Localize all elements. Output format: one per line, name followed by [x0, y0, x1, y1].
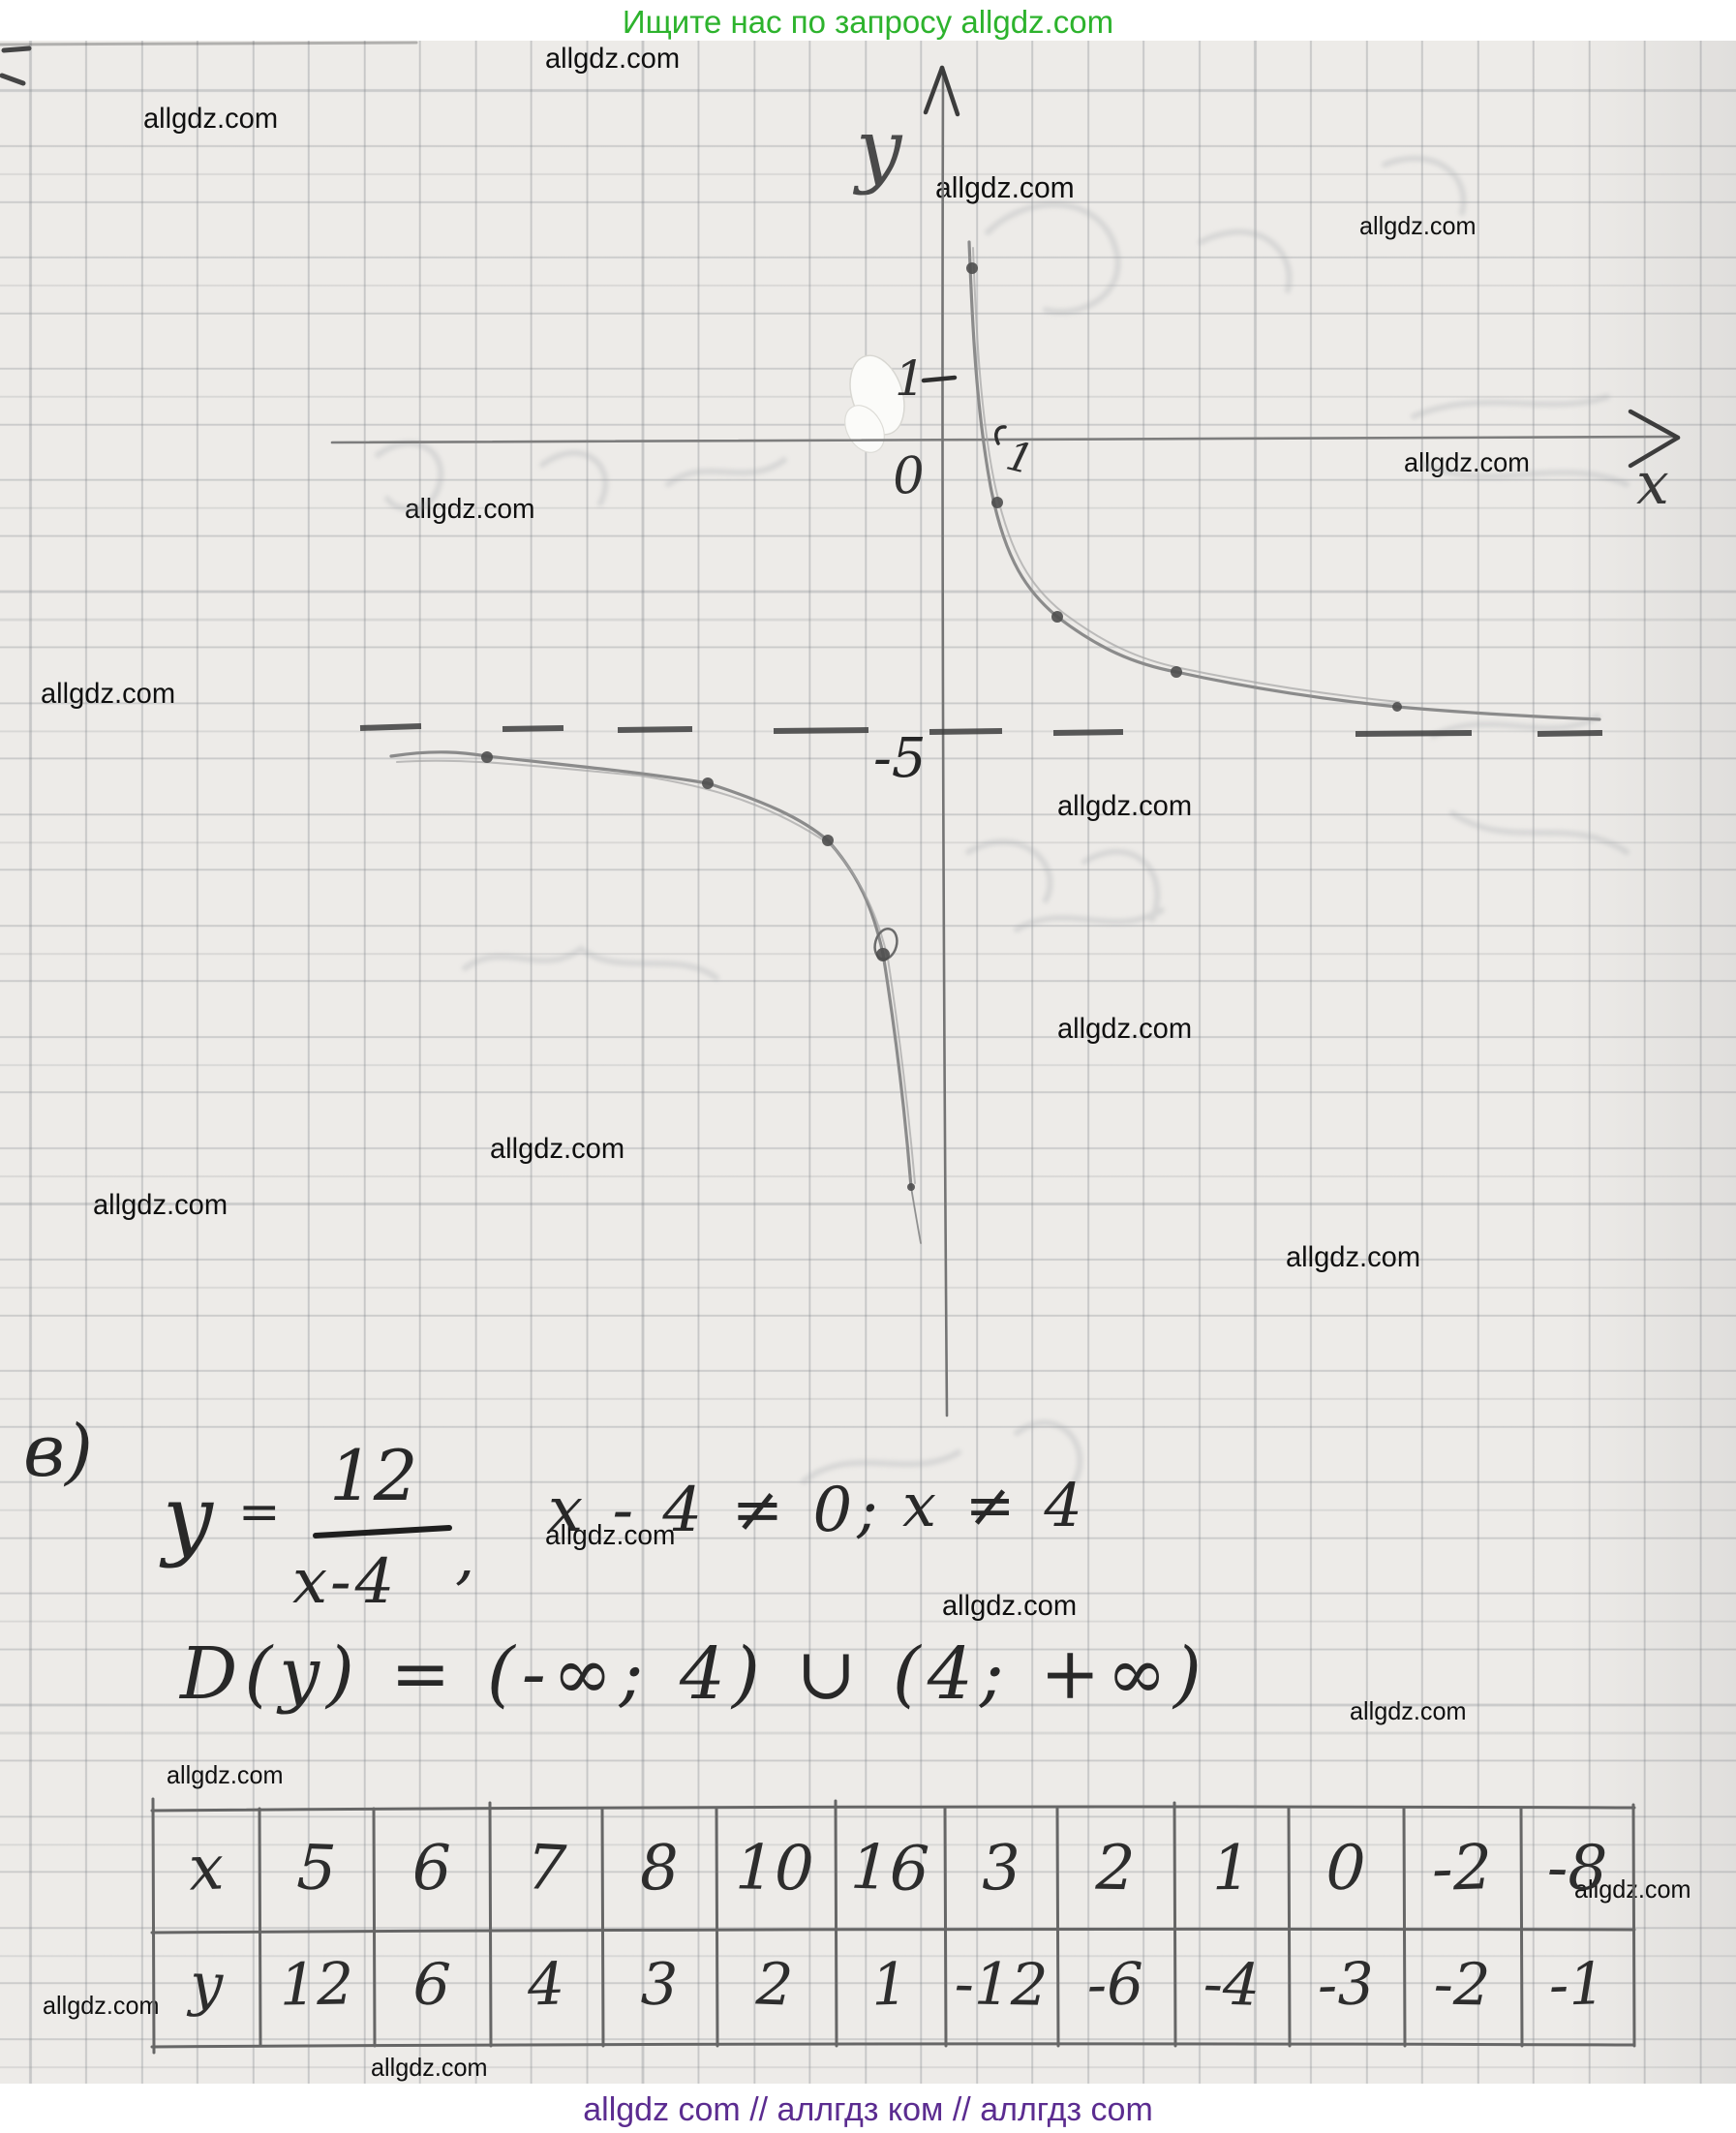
table-cell: 6: [411, 1838, 452, 1901]
pencil-drawing-layer: [0, 0, 1736, 2133]
table-row-label: y: [189, 1955, 224, 2014]
axis-tick-marks: [924, 378, 1005, 443]
y-unit-tick-label: 1: [895, 354, 926, 403]
function-symbol: y: [163, 1474, 213, 1563]
table-cell: 6: [411, 1955, 451, 2015]
table-row-label: x: [188, 1837, 225, 1900]
table-cell: 10: [735, 1837, 815, 1900]
domain-line: D(y) = (-∞; 4) ∪ (4; +∞): [180, 1638, 1208, 1710]
scan-edge-marks: [0, 43, 416, 83]
conclusion-text: x ≠ 4: [902, 1476, 1087, 1536]
table-cell: 2: [1095, 1838, 1136, 1901]
table-cell: 1: [1211, 1838, 1252, 1901]
origin-label: 0: [892, 450, 927, 503]
dashed-level-label: -5: [873, 732, 927, 786]
table-cell: 3: [981, 1837, 1022, 1900]
scanned-homework-page: Ищите нас по запросу allgdz.com allgdz.c…: [0, 0, 1736, 2133]
comma: ,: [455, 1526, 474, 1588]
table-cell: -6: [1086, 1955, 1143, 2014]
table-cell: 3: [640, 1956, 678, 2015]
bleed-through-marks: [378, 159, 1627, 1481]
x-axis-label: x: [1636, 455, 1669, 513]
table-cell: -1: [1548, 1955, 1607, 2015]
table-cell: 5: [296, 1837, 338, 1900]
equals-sign: =: [238, 1487, 281, 1538]
fraction-bar: [316, 1528, 449, 1536]
table-cell: -3: [1317, 1955, 1376, 2015]
y-axis: [926, 68, 958, 1416]
table-cell: 1: [870, 1955, 909, 2014]
fraction-denominator: x-4: [292, 1551, 398, 1613]
footer-promo-text: allgdz com // аллгдз ком // аллгдз com: [0, 2091, 1736, 2129]
x-axis: [332, 411, 1678, 466]
hyperbola-lower-branch: [391, 752, 921, 1243]
part-label: в): [23, 1416, 93, 1487]
condition-text: x - 4 ≠ 0;: [548, 1479, 883, 1541]
table-cell: -8: [1546, 1837, 1607, 1900]
y-axis-label: y: [856, 108, 901, 190]
table-cell: 2: [755, 1955, 794, 2014]
table-cell: 16: [849, 1837, 930, 1902]
table-cell: 0: [1325, 1837, 1367, 1900]
dashed-asymptote-line: [360, 726, 1602, 734]
table-cell: 8: [639, 1837, 681, 1900]
fraction-numerator: 12: [329, 1441, 418, 1510]
table-cell: 7: [525, 1837, 567, 1901]
table-cell: 12: [279, 1955, 353, 2014]
table-cell: -12: [954, 1955, 1049, 2015]
table-cell: -2: [1433, 1955, 1490, 2014]
table-cell: -2: [1431, 1837, 1494, 1901]
table-cell: -4: [1203, 1955, 1262, 2015]
table-cell: 4: [527, 1955, 565, 2014]
